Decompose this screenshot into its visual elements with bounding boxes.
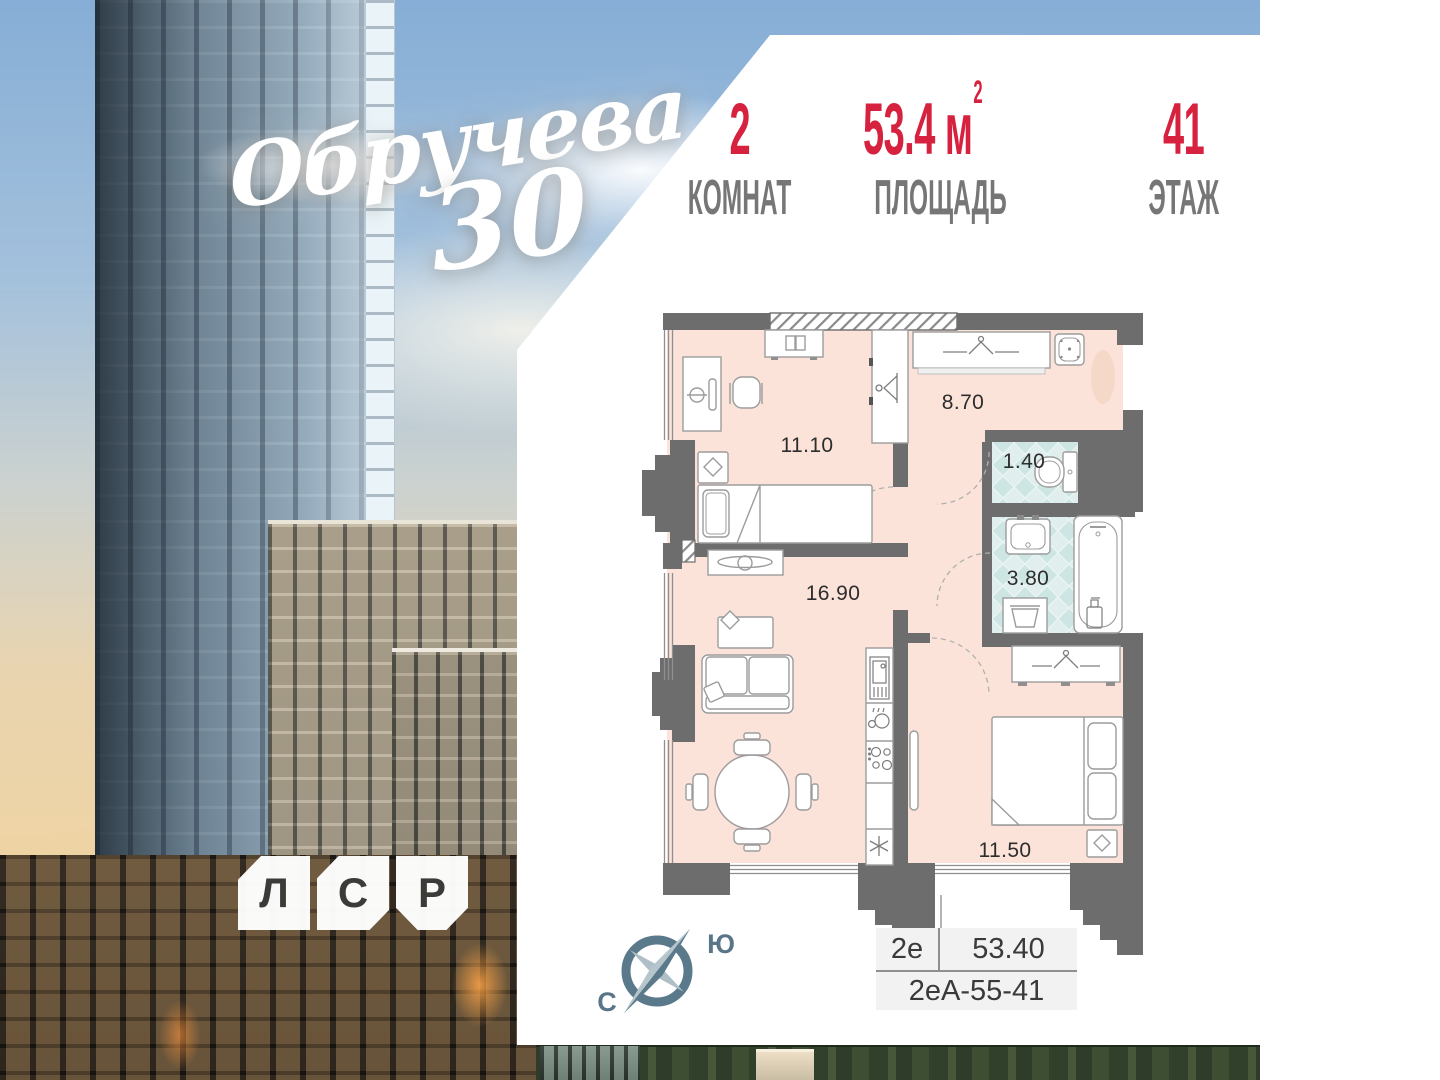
- floor-value: 41: [1074, 95, 1294, 164]
- logo-cube-c: С: [317, 856, 389, 930]
- books-icon: [796, 336, 805, 350]
- listing-card: Обручева 30 Л С Р 2 КОМНАТ 53.4 м2 ПЛОЩА…: [0, 0, 1440, 1080]
- pillow: [703, 490, 729, 537]
- chair: [734, 829, 770, 844]
- floor-label: ЭТАЖ: [1074, 174, 1294, 223]
- logo-letter: С: [338, 869, 368, 917]
- room-area-bedroom2: 11.50: [979, 839, 1032, 862]
- unit-type: 2е: [876, 928, 940, 970]
- hall-closet: [913, 332, 1050, 368]
- chair: [796, 774, 811, 810]
- unit-info-table: 2е 53.40 2еА-55-41: [876, 928, 1077, 1010]
- area-value: 53.4 м2: [808, 95, 1028, 164]
- hatched-wall: [682, 540, 695, 562]
- pillow: [1088, 723, 1116, 769]
- room-area-hallway: 8.70: [942, 391, 984, 414]
- stat-floor: 41 ЭТАЖ: [1074, 95, 1294, 223]
- chair: [734, 740, 770, 755]
- room-area-bathroom: 3.80: [1007, 567, 1049, 590]
- logo-cube-r: Р: [396, 856, 468, 930]
- floor-plan: 11.10 8.70 1.40 3.80 16.90 11.50: [640, 300, 1150, 970]
- laundry-basket: [1003, 598, 1047, 633]
- bathtub: [1074, 516, 1122, 633]
- pillow: [1088, 773, 1116, 819]
- trees-strip: [536, 1045, 1260, 1080]
- room-area-living: 16.90: [806, 582, 861, 605]
- compass: Ю С: [588, 913, 758, 1023]
- toilet-tank: [1063, 452, 1077, 492]
- logo-letter: Р: [418, 869, 446, 917]
- logo-cube-l: Л: [238, 856, 310, 930]
- chair: [693, 774, 708, 810]
- room-area-bedroom1: 11.10: [781, 434, 834, 457]
- pylon: [642, 440, 695, 545]
- logo-letter: Л: [259, 869, 288, 917]
- rug: [1091, 350, 1115, 404]
- compass-north-label: С: [597, 987, 617, 1017]
- pylon: [652, 645, 695, 742]
- hatched-wall: [770, 313, 957, 330]
- stepped-pier: [1070, 863, 1143, 955]
- dining-table: [715, 755, 789, 829]
- beige-building-bottom: [756, 1049, 814, 1080]
- stat-area: 53.4 м2 ПЛОЩАДЬ: [808, 95, 1028, 223]
- open-door-leaf: [910, 731, 918, 810]
- wardrobe-door: [872, 330, 908, 443]
- books-icon: [786, 336, 795, 350]
- compass-south-label: Ю: [707, 929, 735, 959]
- unit-code: 2еА-55-41: [876, 970, 1077, 1010]
- glass-facade-bottom: [540, 1046, 640, 1080]
- wardrobe: [1012, 646, 1120, 682]
- area-label: ПЛОЩАДЬ: [808, 174, 1028, 223]
- room-area-wc: 1.40: [1003, 450, 1045, 473]
- developer-logo: Л С Р: [238, 856, 468, 930]
- desk-chair: [733, 377, 760, 408]
- unit-total-area: 53.40: [940, 928, 1077, 970]
